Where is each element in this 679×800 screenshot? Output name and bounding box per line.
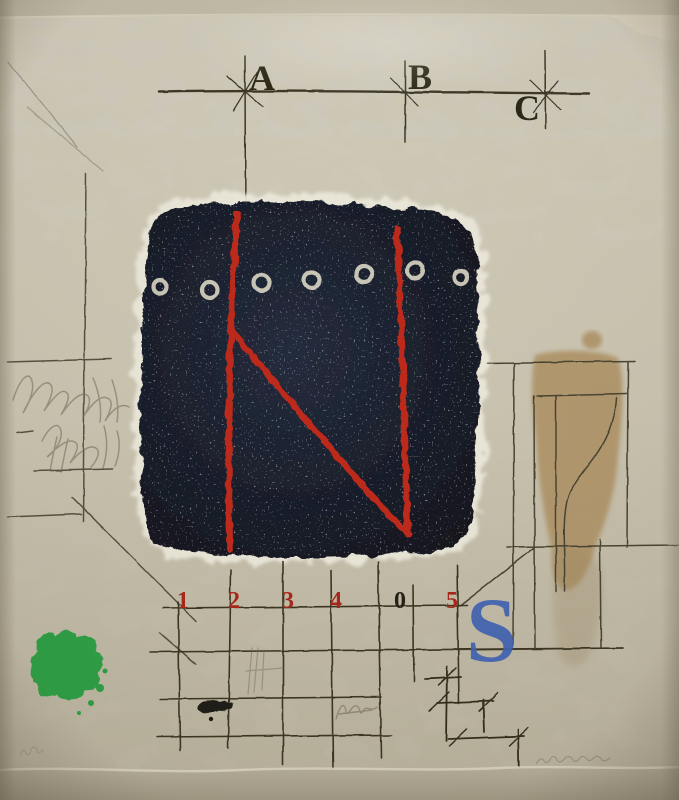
photo-vignette (0, 0, 679, 800)
artwork-canvas: A B C (0, 0, 679, 800)
artwork-photo: A B C (0, 0, 679, 800)
